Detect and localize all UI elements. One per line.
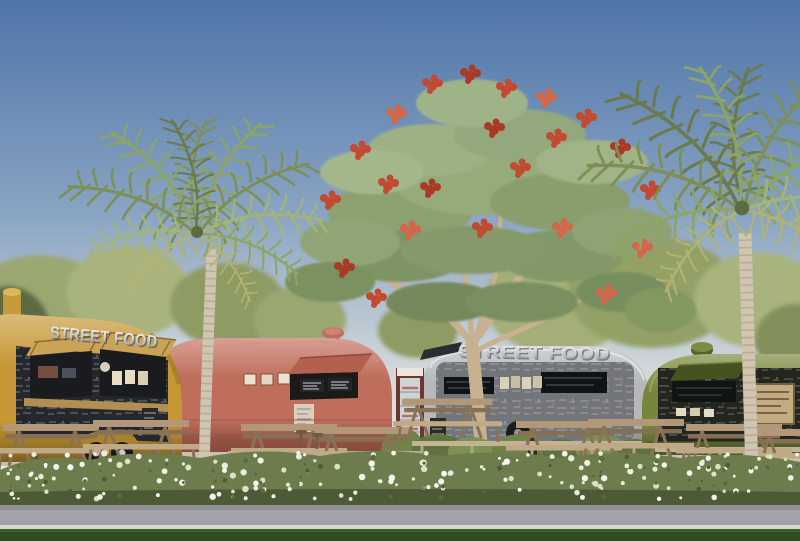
silver-service-window-right [541, 372, 607, 393]
curb [0, 525, 800, 529]
green-menu-cards [676, 408, 714, 417]
flower-hedge [0, 450, 800, 508]
silver-trailer-sign: STREET FOOD STREET FOOD [458, 342, 612, 365]
silver-sign-text: STREET FOOD [458, 342, 610, 364]
scene-canvas: STREET FOOD STREET FOOD [0, 0, 800, 541]
street-food-park-rendering: STREET FOOD STREET FOOD [0, 0, 800, 541]
green-menu-board [752, 384, 794, 424]
right-palm-trunk [745, 232, 752, 478]
green-service-window [672, 381, 736, 402]
